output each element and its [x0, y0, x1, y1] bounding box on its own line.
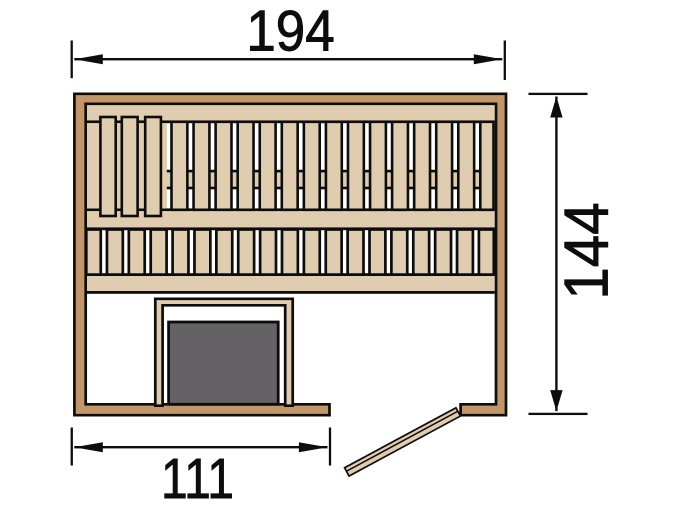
- svg-text:144: 144: [552, 202, 621, 299]
- svg-text:111: 111: [161, 448, 234, 510]
- svg-text:194: 194: [246, 0, 334, 63]
